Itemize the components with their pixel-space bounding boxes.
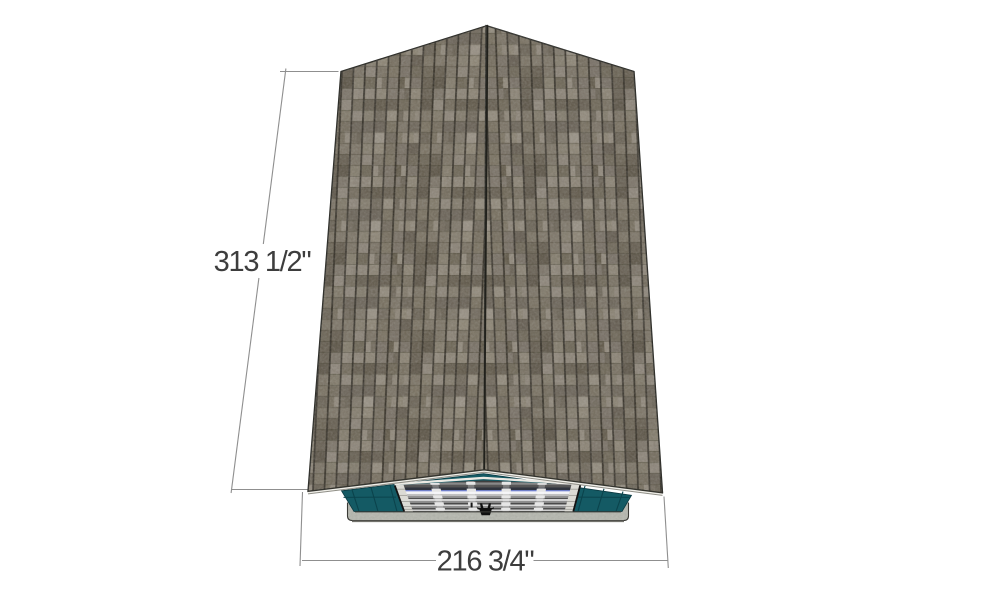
svg-text:313 1/2": 313 1/2" <box>214 246 312 278</box>
svg-text:216 3/4": 216 3/4" <box>437 546 535 578</box>
